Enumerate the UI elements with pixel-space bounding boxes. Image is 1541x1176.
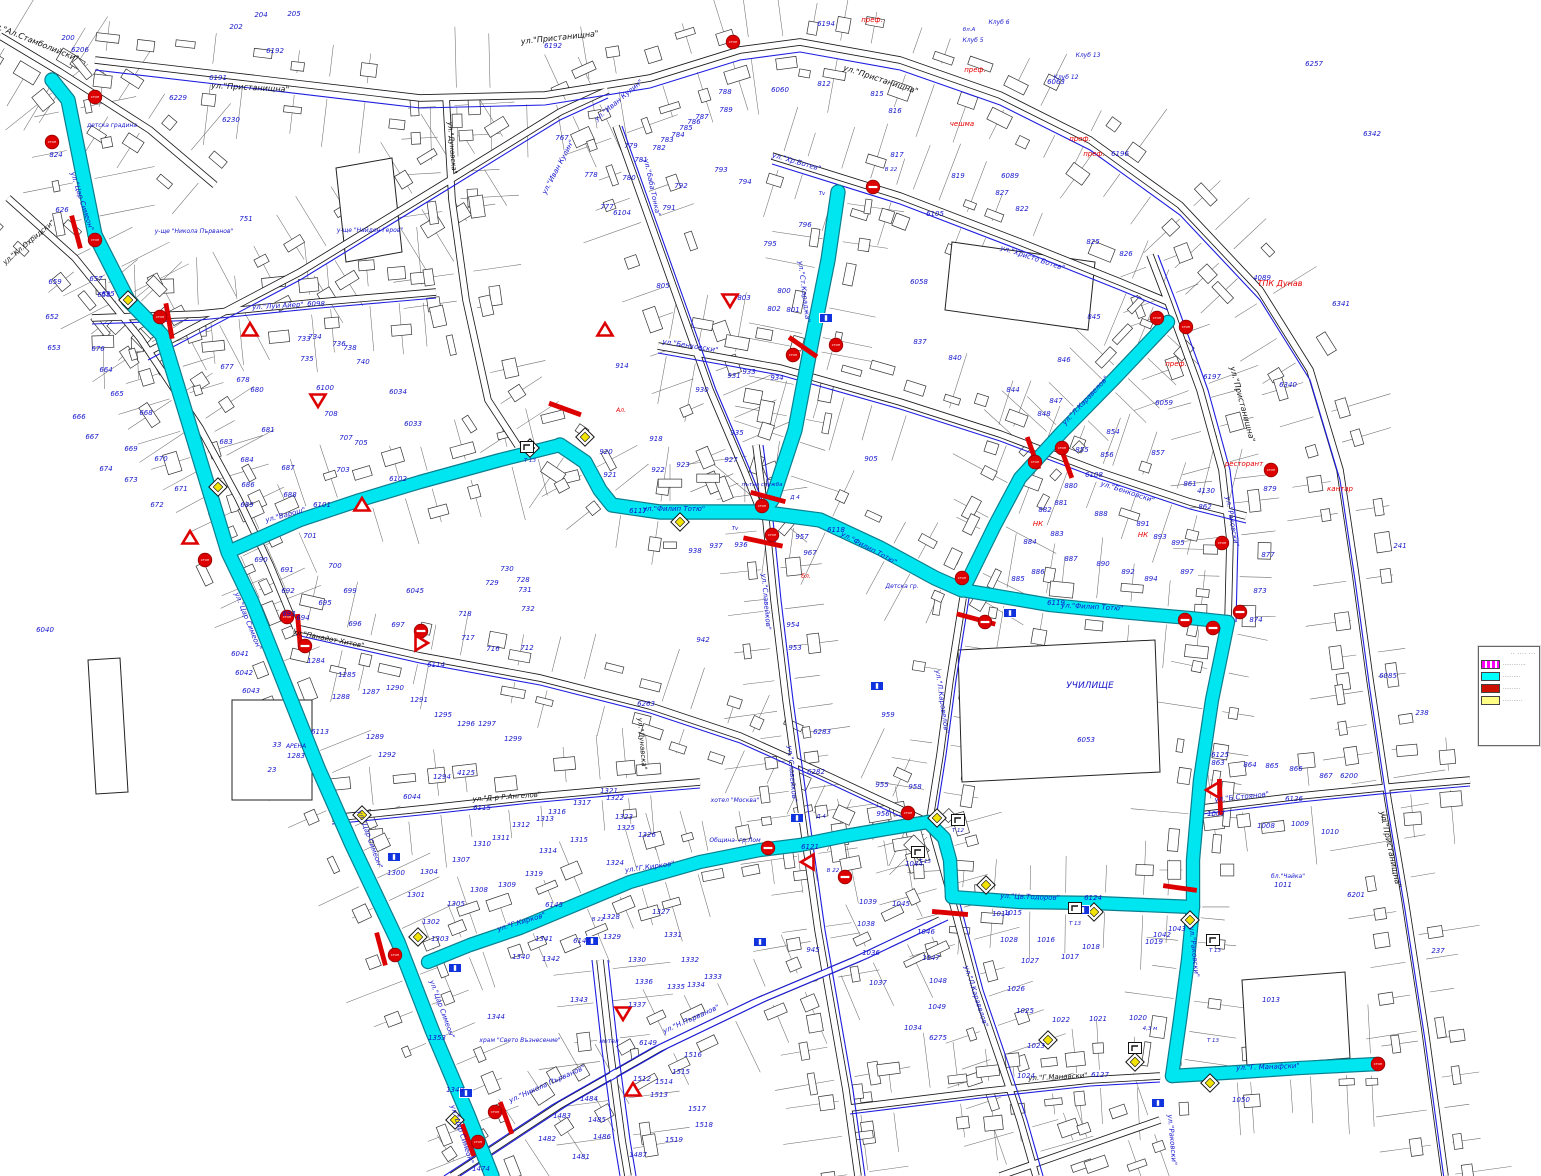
building (641, 117, 652, 134)
stop-sign-icon: СТОП (1179, 320, 1193, 334)
building (1305, 444, 1318, 458)
parcel-number-label: 1290 (386, 684, 404, 692)
parcel-number-label: 701 (303, 532, 316, 540)
building (865, 510, 882, 522)
parcel-number-label: 942 (696, 636, 710, 644)
building (1221, 864, 1234, 876)
parcel-number-label: бл.А (963, 27, 976, 33)
parcel-number-label: 935 (730, 429, 744, 437)
building (268, 330, 289, 344)
building (1185, 529, 1199, 541)
building (1396, 744, 1417, 757)
parcel-number-label: 1289 (366, 733, 384, 741)
warning-triangle-icon (311, 395, 326, 408)
map-annotation-red: бл. (801, 573, 811, 580)
building (1440, 791, 1463, 808)
parcel-line (109, 227, 132, 239)
building (1435, 1017, 1447, 1038)
parcel-line (993, 1126, 1007, 1165)
table-sign-icon (1069, 903, 1082, 914)
parcel-line (1444, 1104, 1469, 1107)
map-annotation-red: Ал. (615, 407, 626, 414)
building (1307, 475, 1323, 492)
building (843, 263, 857, 286)
warning-triangle-icon (801, 855, 814, 870)
parcel-number-label: 4130 (1197, 487, 1215, 495)
parcel-line (884, 574, 910, 621)
parcel-number-label: 844 (1006, 386, 1019, 394)
parcel-number-label: 1020 (1129, 1014, 1147, 1022)
parcel-number-label: 6040 (36, 626, 54, 634)
building (680, 404, 693, 417)
building (561, 861, 583, 880)
parcel-number-label: 6113 (311, 728, 329, 736)
building (1074, 1091, 1086, 1106)
parcel-number-label: 1294 (433, 773, 451, 781)
building (473, 1047, 486, 1063)
parcel-line (1201, 918, 1225, 920)
parcel-number-label: 863 (1211, 759, 1224, 767)
parcel-number-label: 687 (281, 464, 295, 472)
parcel-number-label: 1330 (628, 956, 646, 964)
parcel-number-label: 930 (695, 386, 709, 394)
parcel-number-label: 667 (85, 433, 99, 441)
parcel-number-label: 945 (806, 946, 820, 954)
building (944, 394, 961, 405)
parcel-number-label: у-ще "Найден Геров" (336, 227, 404, 234)
parcel-number-label: 1312 (512, 821, 530, 829)
parcel-number-label: 731 (518, 586, 531, 594)
parcel-number-label: 1322 (606, 794, 624, 802)
parcel-number-label: 6206 (71, 46, 89, 54)
parcel-number-label: 1284 (307, 657, 325, 665)
street-name-label: ул."Иван Кулин" (540, 138, 576, 196)
parcel-line (1368, 1004, 1371, 1053)
parcel-line (680, 811, 692, 853)
parcel-number-label: 718 (458, 610, 472, 618)
building (137, 39, 155, 51)
building (663, 542, 676, 548)
building (786, 957, 802, 972)
parcel-number-label: 6034 (389, 388, 407, 396)
parcel-line (913, 145, 930, 189)
parcel-line (826, 923, 852, 927)
parcel-number-label: 895 (1171, 539, 1185, 547)
building (394, 170, 412, 189)
building (702, 868, 725, 881)
building (802, 727, 811, 739)
building (352, 466, 372, 481)
parcel-line (239, 319, 244, 365)
parcel-number-label: 700 (328, 562, 342, 570)
parcel-line (761, 736, 782, 739)
building (1167, 828, 1179, 851)
parcel-number-label: 1295 (434, 711, 452, 719)
no-entry-sign-icon (978, 615, 992, 629)
building (963, 200, 976, 211)
parcel-number-label: 1307 (452, 856, 470, 864)
parcel-number-label: 1283 (287, 752, 305, 760)
parcel-number-label: 1329 (603, 933, 621, 941)
parcel-number-label: мотел (599, 1038, 618, 1045)
no-entry-sign-icon (1233, 605, 1247, 619)
parcel-number-label: 1335 (667, 983, 685, 991)
parcel-number-label: 922 (651, 466, 665, 474)
parcel-number-label: 1323 (615, 813, 633, 821)
parcel-number-label: 740 (356, 358, 370, 366)
parcel-number-label: 6127 (1091, 1071, 1109, 1079)
building (1334, 612, 1350, 631)
parcel-number-label: 238 (1415, 709, 1429, 717)
parcel-number-label: 1301 (407, 891, 425, 899)
parcel-line (1120, 267, 1145, 277)
parcel-line (469, 957, 482, 990)
building (1085, 620, 1103, 632)
water-line (658, 353, 1246, 523)
parcel-number-label: Клуб 12 (1054, 74, 1079, 81)
building (1041, 1057, 1058, 1067)
warning-triangle-icon (723, 295, 738, 308)
parcel-number-label: 680 (250, 386, 264, 394)
parcel-line (1237, 634, 1267, 640)
parcel-number-label: 6146 (573, 937, 591, 945)
parcel-line (213, 252, 236, 296)
parcel-line (1394, 770, 1446, 778)
parcel-number-label: 782 (652, 144, 666, 152)
parcel-number-label: Т 13 (1069, 921, 1082, 927)
parcel-number-label: 1336 (635, 978, 653, 986)
parcel-number-label: 1317 (573, 799, 591, 807)
parcel-number-label: 795 (763, 240, 777, 248)
parcel-number-label: 1028 (1000, 936, 1018, 944)
parcel-number-label: 840 (948, 354, 962, 362)
building (1139, 461, 1152, 473)
building (13, 61, 40, 85)
building (219, 396, 235, 412)
parcel-number-label: 716 (486, 645, 500, 653)
parcel-line (740, 0, 748, 37)
building (1109, 1104, 1127, 1119)
large-building (88, 658, 128, 794)
parcel-number-label: 690 (254, 556, 268, 564)
building (393, 773, 416, 783)
street-name-label: ул."Луи Айер" (251, 301, 304, 312)
parcel-number-label: 1341 (535, 935, 553, 943)
parcel-number-label: 956 (876, 810, 890, 818)
building (122, 133, 144, 153)
parcel-line (1342, 428, 1391, 443)
parcel-line (1065, 914, 1066, 953)
building (1191, 660, 1202, 672)
building (291, 61, 305, 71)
parcel-line (728, 611, 763, 615)
building (1449, 1029, 1465, 1042)
parcel-number-label: 735 (300, 355, 314, 363)
parcel-number-label: 866 (1289, 765, 1303, 773)
parcel-number-label: 1291 (410, 696, 428, 704)
parcel-number-label: 958 (908, 783, 922, 791)
parcel-number-label: 1311 (492, 834, 510, 842)
parcel-number-label: 693 (282, 610, 295, 618)
building (648, 537, 661, 552)
parcel-line (754, 959, 766, 986)
building (761, 817, 771, 826)
building (1398, 713, 1413, 724)
parcel-line (1290, 1080, 1292, 1113)
parcel-line (691, 668, 705, 709)
building (743, 388, 762, 405)
parcel-line (1241, 531, 1275, 535)
parcel-line (370, 306, 374, 351)
parcel-number-label: 728 (516, 576, 530, 584)
legend-item-label: ··········· (1503, 698, 1523, 703)
building (965, 835, 978, 847)
parcel-line (1352, 780, 1377, 784)
parcel-number-label: 1343 (570, 996, 588, 1004)
parcel-number-label: 1296 (457, 720, 475, 728)
parcel-number-label: 6108 (1085, 471, 1103, 479)
building (1077, 1122, 1091, 1135)
parcel-line (1430, 988, 1454, 992)
parcel-number-label: 854 (1106, 428, 1119, 436)
building (501, 686, 526, 699)
parcel-line (795, 675, 820, 678)
parcel-line (658, 356, 667, 404)
svg-text:СТОП: СТОП (1182, 325, 1191, 329)
parcel-line (1029, 912, 1030, 959)
parcel-line (1411, 873, 1435, 877)
parcel-number-label: 885 (1011, 575, 1025, 583)
parcel-number-label: 237 (1431, 947, 1445, 955)
parcel-number-label: 1515 (672, 1068, 690, 1076)
warning-triangle-icon (616, 1008, 631, 1021)
parcel-number-label: 865 (1265, 762, 1279, 770)
parcel-number-label: 4125 (457, 769, 475, 777)
parcel-number-label: 1038 (857, 920, 875, 928)
svg-text:СТОП: СТОП (201, 558, 210, 562)
parcel-line (808, 133, 815, 156)
parcel-number-label: 688 (283, 491, 297, 499)
parcel-line (470, 815, 472, 837)
parcel-number-label: 884 (1023, 538, 1036, 546)
parcel-number-label: 6201 (1347, 891, 1365, 899)
parcel-line (1311, 806, 1317, 864)
svg-text:СТОП: СТОП (729, 40, 738, 44)
building (536, 880, 558, 894)
parcel-number-label: 793 (714, 166, 727, 174)
building (785, 557, 801, 576)
legend-item: ·········· (1479, 682, 1539, 694)
parcel-line (1229, 673, 1249, 677)
building (1095, 347, 1116, 369)
building (983, 961, 998, 982)
building (944, 548, 963, 570)
parcel-number-label: 796 (798, 221, 812, 229)
building (1338, 721, 1348, 735)
building (1343, 746, 1358, 765)
building (554, 1117, 573, 1135)
parcel-number-label: 6230 (222, 116, 240, 124)
legend-item-label: ·········· (1503, 674, 1521, 679)
building (1065, 1051, 1085, 1067)
parcel-number-label: 1045 (892, 900, 910, 908)
parcel-number-label: 845 (1087, 313, 1101, 321)
building (1208, 998, 1221, 1009)
parcel-number-label: 923 (676, 461, 689, 469)
table-sign-icon (952, 815, 965, 826)
parcel-number-label: 695 (318, 599, 332, 607)
parcel-line (862, 405, 872, 440)
building (742, 864, 760, 876)
parcel-number-label: 6089 (1001, 172, 1019, 180)
building (253, 661, 269, 678)
parcel-number-label: 1010 (1321, 828, 1339, 836)
building (1127, 1159, 1147, 1171)
parcel-number-label: 1518 (695, 1121, 713, 1129)
parcel-number-label: 6125 (1211, 751, 1229, 759)
parcel-number-label: 1353 (428, 1034, 446, 1042)
warning-triangle-icon (416, 636, 429, 651)
svg-text:СТОП: СТОП (156, 315, 165, 319)
parcel-number-label: 1300 (387, 869, 405, 877)
svg-text:СТОП: СТОП (1267, 468, 1276, 472)
building (758, 422, 775, 440)
parcel-number-label: 846 (1057, 356, 1071, 364)
parcel-line (1234, 475, 1266, 479)
parcel-number-label: 883 (1050, 530, 1063, 538)
parcel-line (1376, 1110, 1427, 1117)
parcel-number-label: 1019 (1145, 938, 1163, 946)
parcel-line (1131, 197, 1151, 225)
map-annotation-red: преф. (1165, 360, 1187, 368)
parcel-line (538, 691, 547, 728)
parcel-number-label: Т 13 (919, 859, 932, 865)
legend-item: ············· (1479, 658, 1539, 670)
building (1044, 1098, 1062, 1106)
svg-text:СТОП: СТОП (391, 953, 400, 957)
parcel-number-label: 1017 (1061, 953, 1079, 961)
map-annotation-red: НК (1033, 520, 1044, 528)
parcel-number-label: 800 (777, 287, 791, 295)
parcel-line (1086, 482, 1096, 508)
parcel-number-label: 1484 (580, 1095, 598, 1103)
building (1335, 398, 1351, 419)
building (987, 107, 1013, 129)
parcel-line (1168, 580, 1170, 606)
parcel-number-label: 6098 (307, 300, 325, 308)
parcel-number-label: 1333 (704, 973, 722, 981)
parcel-line (736, 1021, 761, 1072)
info-sign-icon (754, 938, 767, 947)
parcel-number-label: 1039 (859, 898, 877, 906)
legend-swatch-icon (1481, 660, 1500, 669)
building (423, 269, 435, 286)
parcel-number-label: детска градина (86, 122, 137, 129)
svg-text:СТОП: СТОП (48, 140, 57, 144)
building (1176, 739, 1184, 753)
parcel-number-label: 6104 (613, 209, 631, 217)
parcel-line (1310, 1077, 1312, 1124)
building (1196, 588, 1209, 597)
parcel-number-label: 1316 (548, 808, 566, 816)
legend-swatch-icon (1481, 696, 1500, 705)
building (1177, 767, 1191, 784)
parcel-line (869, 1166, 908, 1172)
parcel-number-label: 686 (241, 481, 255, 489)
building (1404, 812, 1422, 826)
stop-sign-icon: СТОП (829, 338, 843, 352)
parcel-line (1137, 1087, 1140, 1140)
parcel-line (725, 750, 744, 793)
parcel-line (662, 649, 679, 701)
building (798, 69, 810, 78)
parcel-line (330, 45, 334, 77)
buildings-layer (0, 16, 1474, 1176)
parcel-number-label: 673 (124, 476, 137, 484)
parcel-number-label: у-ще "Никола Първанов" (154, 228, 234, 235)
parcel-number-label: 816 (888, 107, 902, 115)
parcel-number-label: 886 (1031, 568, 1045, 576)
parcel-line (215, 421, 235, 432)
parcel-line (512, 467, 525, 520)
parcel-number-label: Клуб 13 (1076, 52, 1101, 59)
no-entry-sign-icon (761, 841, 775, 855)
parcel-number-label: 794 (738, 178, 751, 186)
building (1247, 489, 1261, 512)
parcel-line (1088, 421, 1108, 441)
parcel-number-label: 891 (1136, 520, 1149, 528)
info-sign-icon (820, 314, 833, 323)
parcel-line (602, 800, 605, 830)
building (1112, 324, 1132, 345)
parcel-line (584, 222, 641, 242)
parcel-line (373, 508, 383, 542)
parcel-line (791, 476, 841, 492)
building (1321, 509, 1332, 522)
parcel-number-label: 1297 (478, 720, 496, 728)
parcel-line (359, 102, 365, 153)
building (725, 335, 750, 351)
parcel-number-label: 1043 (1168, 925, 1186, 933)
parcel-number-label: 671 (174, 485, 187, 493)
parcel-number-label: 6149 (639, 1039, 657, 1047)
parcel-line (652, 379, 694, 394)
parcel-number-label: 6342 (1363, 130, 1381, 138)
svg-text:СТОП: СТОП (958, 576, 967, 580)
parcel-number-label: 6282 (807, 768, 825, 776)
parcel-number-label: 1304 (420, 868, 438, 876)
building (242, 464, 256, 482)
building (985, 209, 1004, 223)
road-rakovski-n (1150, 255, 1230, 622)
parcel-number-label: 696 (348, 620, 362, 628)
parcel-number-label: Д 4 (815, 814, 826, 820)
legend-item-label: ············· (1503, 662, 1526, 667)
parcel-number-label: 1337 (628, 1001, 646, 1009)
parcel-line (409, 822, 412, 855)
parcel-number-label: 805 (656, 282, 670, 290)
info-sign-icon (791, 814, 804, 823)
parcel-line (615, 464, 648, 490)
parcel-number-label: 6100 (316, 384, 334, 392)
parcel-line (1185, 1059, 1227, 1065)
parcel-line (782, 929, 807, 932)
building (764, 1003, 787, 1020)
building (696, 1035, 718, 1052)
parcel-line (718, 983, 729, 1005)
parcel-line (1401, 803, 1429, 808)
building (52, 180, 60, 192)
